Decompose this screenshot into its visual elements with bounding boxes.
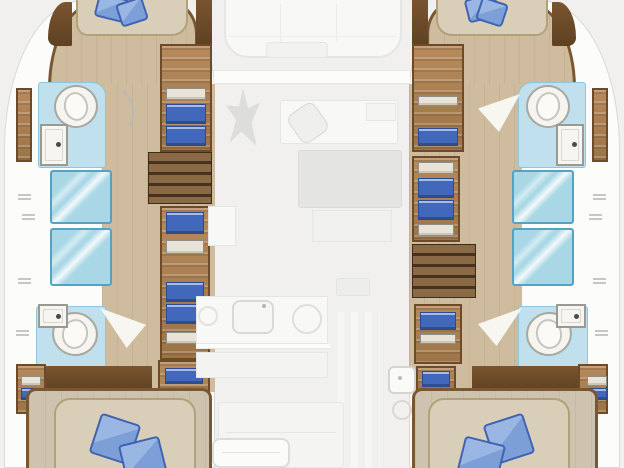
aft-ring [392,400,412,420]
aft-bench-divider [226,432,336,433]
starboard-fwd-drawer-white [418,96,458,106]
starboard-cleat-1 [593,194,606,200]
port-forward-locker [48,2,72,46]
settee-cushion-line [230,36,396,37]
galley-faucet [262,304,266,308]
cockpit-table-line [222,452,280,453]
starboard-dresser-drawer-blue-1 [418,178,454,198]
port-aft-sink-vanity [38,304,68,328]
starboard-dresser-drawer-blue-2 [418,200,454,220]
helm-plant [226,88,260,146]
port-cleat-1 [18,194,31,200]
starboard-cleat-3 [593,278,606,284]
starboard-dresser-drawer-white-2 [418,224,454,236]
galley-counter-edge [196,344,346,349]
aft-wet-sink-drain [398,376,402,380]
galley-burner [292,304,322,334]
port-hull-window-2 [50,228,112,286]
starboard-aft-sink-vanity [556,304,586,328]
aft-wet-sink [388,366,416,394]
starboard-aft-wardrobe-drawer-white [587,376,607,386]
starboard-hull-window-1 [512,170,574,224]
port-counter [208,206,236,246]
port-inner-wall-forward [196,0,212,46]
salon-bench [312,210,392,242]
starboard-cleat-4 [595,330,608,336]
starboard-small-drawer-blue [422,371,450,387]
floorplan-canvas [0,0,624,468]
port-cleat-4 [16,330,29,336]
port-dresser-drawer-blue-2 [166,126,206,146]
port-dresser-drawer-blue-1 [166,104,206,124]
cockpit-table [212,438,290,468]
starboard-cleat-2 [589,214,602,220]
port-aft-wardrobe-drawer-white [21,376,41,386]
port-cleat-2 [22,214,35,220]
galley-sink [232,300,274,334]
starboard-forward-locker [552,2,576,46]
port-companionway-stairs [148,152,212,204]
starboard-forward-sink-vanity [556,124,584,166]
starboard-aft-drawer-blue-1 [420,312,456,330]
starboard-forward-wardrobe [592,88,608,162]
windshield-band [214,70,410,84]
settee-table [266,42,328,58]
port-mid-drawer-blue-1 [166,212,204,234]
starboard-aft-drawer-white-1 [420,334,456,344]
port-hull-window-1 [50,170,112,224]
galley-block [336,278,370,296]
port-dresser-drawer-white [166,88,206,100]
port-forward-wardrobe [16,88,32,162]
salon-table [298,150,402,208]
port-forward-sink-vanity [40,124,68,166]
starboard-fwd-drawer-blue [418,128,458,146]
galley-ring [198,306,218,326]
galley-lower-counter [196,352,328,378]
nav-shelf [366,103,396,121]
starboard-hull-window-2 [512,228,574,286]
port-cleat-3 [18,278,31,284]
starboard-inner-wall-forward [412,0,428,46]
starboard-dresser-drawer-white-1 [418,162,454,174]
port-mid-drawer-white-1 [166,240,204,254]
starboard-companionway-stairs [412,244,476,298]
